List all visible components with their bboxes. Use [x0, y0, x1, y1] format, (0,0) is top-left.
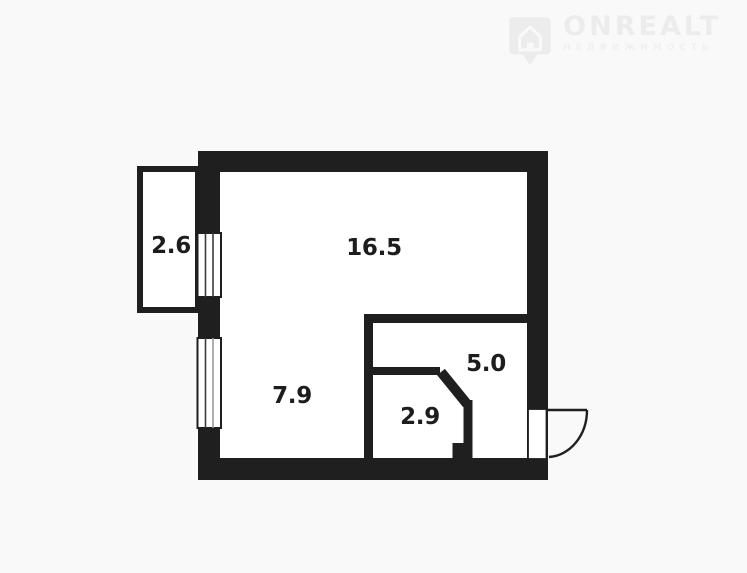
outer-wall-left	[198, 151, 220, 480]
entry-door-arc	[549, 410, 587, 457]
page: ONREALT НЕДВИЖИМОСТЬ	[0, 0, 747, 573]
room-label-bathroom: 2.9	[400, 404, 440, 430]
bathroom-wall-stub	[453, 443, 473, 458]
interior-wall-vertical	[364, 314, 373, 458]
window-symbol-lower	[198, 338, 222, 428]
floor-plan: 2.6 16.5 7.9 5.0 2.9	[0, 0, 747, 573]
room-label-balcony: 2.6	[151, 233, 191, 259]
outer-wall-bottom	[198, 458, 548, 480]
room-label-main-room: 16.5	[346, 235, 402, 261]
room-label-room-right: 5.0	[466, 351, 506, 377]
interior-wall-horizontal	[364, 314, 528, 323]
window-symbol-upper	[198, 233, 222, 297]
bathroom-wall-top	[373, 367, 440, 375]
outer-wall-top	[198, 151, 548, 172]
room-label-room-left: 7.9	[272, 383, 312, 409]
entry-door-opening	[528, 409, 547, 459]
